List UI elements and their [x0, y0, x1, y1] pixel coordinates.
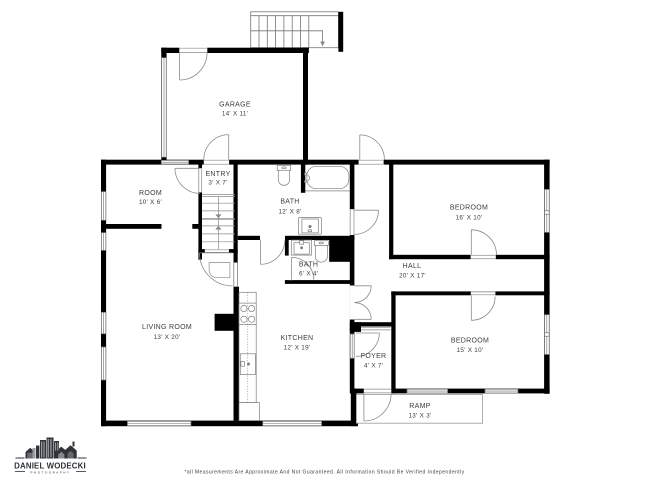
svg-text:13' X 3': 13' X 3' [408, 413, 431, 420]
svg-text:13' X 20': 13' X 20' [154, 334, 181, 341]
svg-text:*all Measurements Are Approxim: *all Measurements Are Approximate And No… [184, 470, 464, 476]
svg-text:12' X 19': 12' X 19' [284, 345, 311, 352]
svg-text:KITCHEN: KITCHEN [281, 335, 314, 342]
svg-text:HALL: HALL [403, 263, 422, 270]
svg-text:BEDROOM: BEDROOM [450, 205, 488, 212]
svg-text:RAMP: RAMP [409, 403, 430, 410]
svg-text:ROOM: ROOM [139, 190, 162, 197]
svg-text:14' X 11': 14' X 11' [222, 111, 248, 118]
svg-text:10' X 6': 10' X 6' [139, 199, 162, 206]
svg-text:BEDROOM: BEDROOM [451, 338, 489, 345]
svg-text:GARAGE: GARAGE [219, 102, 251, 109]
svg-text:12' X 8': 12' X 8' [278, 209, 301, 216]
svg-text:BATH: BATH [299, 262, 318, 269]
svg-text:ENTRY: ENTRY [205, 171, 230, 178]
svg-text:15' X 10': 15' X 10' [457, 347, 484, 354]
svg-text:20' X 17': 20' X 17' [399, 272, 426, 279]
svg-text:DANIEL WODECKI: DANIEL WODECKI [14, 461, 86, 470]
svg-text:6' X 4': 6' X 4' [299, 271, 318, 278]
svg-text:4' X 7': 4' X 7' [364, 363, 383, 370]
svg-text:PHOTOGRAPHY: PHOTOGRAPHY [31, 470, 71, 474]
svg-text:3' X 7': 3' X 7' [208, 179, 227, 186]
svg-text:LIVING ROOM: LIVING ROOM [142, 324, 192, 331]
svg-text:BATH: BATH [280, 199, 299, 206]
svg-text:16' X 10': 16' X 10' [456, 215, 483, 222]
svg-text:FOYER: FOYER [361, 353, 387, 360]
